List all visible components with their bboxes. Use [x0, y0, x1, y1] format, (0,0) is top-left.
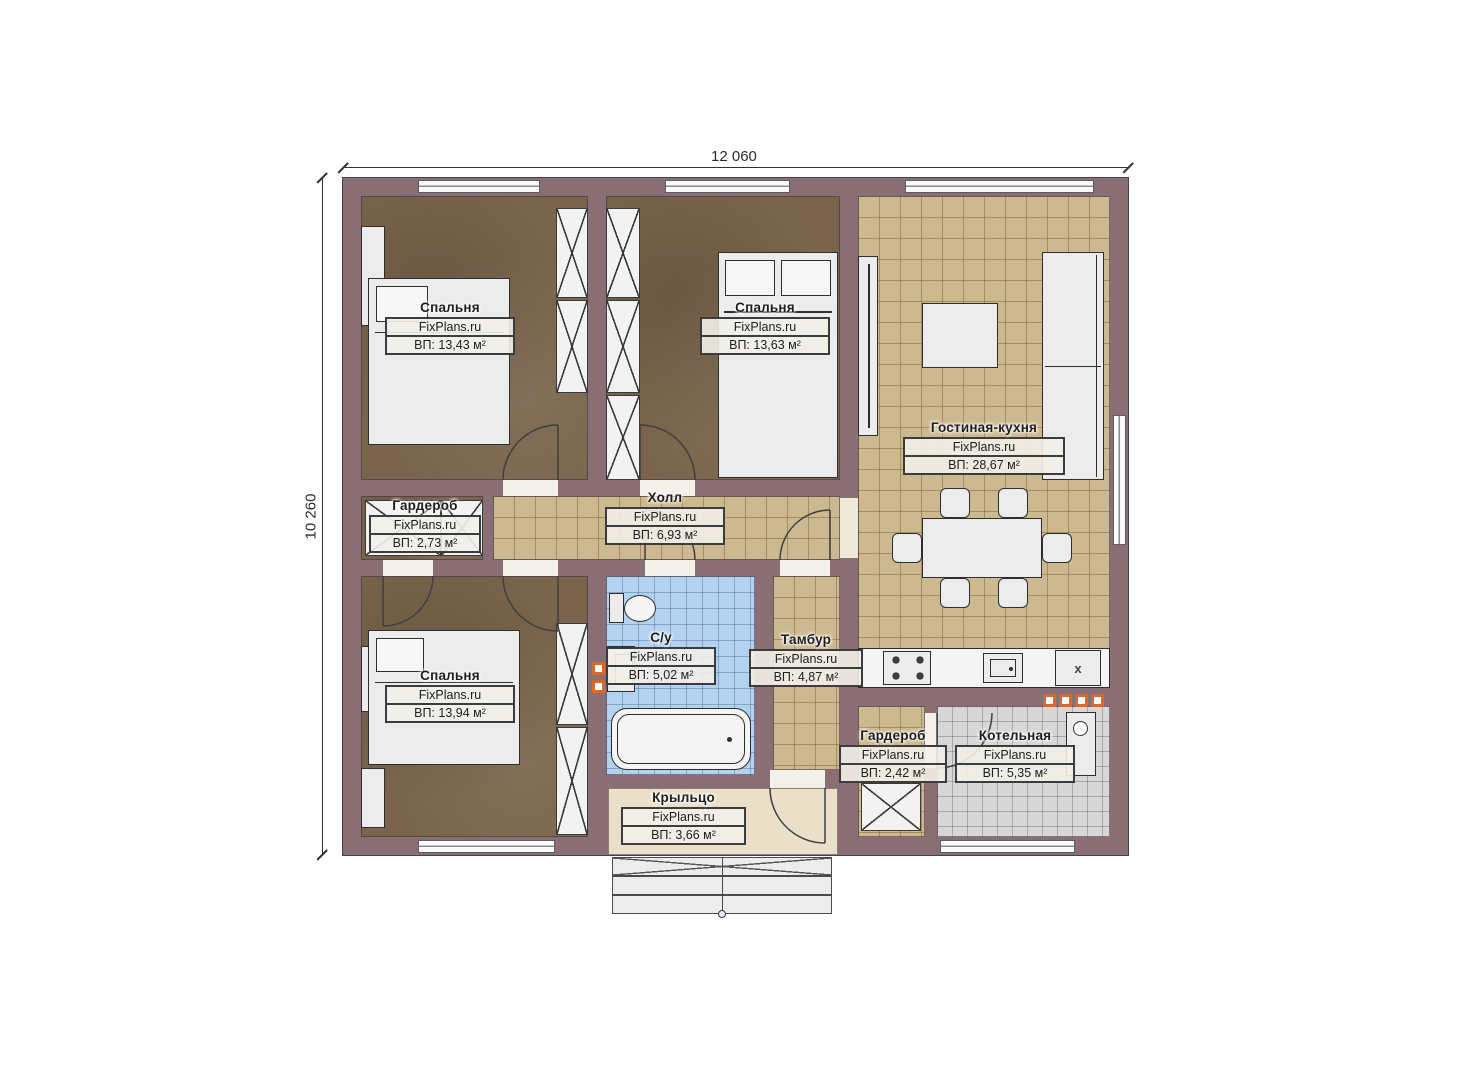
porch-center-line: [722, 857, 723, 914]
chair-symbol: [940, 578, 970, 608]
room-label-tambour: Тамбур FixPlans.ru ВП: 4,87 м²: [749, 632, 863, 687]
boiler-dial: [1073, 721, 1088, 736]
radiator-marker: [1091, 694, 1104, 707]
room-label-wardrobe1: Гардероб FixPlans.ru ВП: 2,73 м²: [369, 498, 481, 553]
brand-watermark: FixPlans.ru: [839, 745, 947, 765]
room-area: ВП: 13,94 м²: [385, 703, 515, 723]
toilet-tank: [609, 593, 624, 623]
room-name: Тамбур: [749, 632, 863, 647]
house-plan: x: [343, 178, 1128, 855]
window-symbol: [665, 180, 790, 193]
bathtub-drain: [727, 737, 732, 742]
closet-symbol: [556, 727, 588, 835]
toilet-bowl: [624, 595, 656, 622]
dining-table-symbol: [922, 518, 1042, 578]
fridge-symbol: x: [1055, 650, 1101, 686]
room-name: Гостиная-кухня: [903, 420, 1065, 435]
window-symbol: [940, 840, 1075, 853]
room-area: ВП: 4,87 м²: [749, 667, 863, 687]
closet-symbol: [606, 208, 640, 298]
tv-symbol: [858, 256, 878, 436]
brand-watermark: FixPlans.ru: [903, 437, 1065, 457]
fridge-mark: x: [1056, 651, 1100, 685]
bed-symbol: [718, 252, 838, 478]
room-name: Холл: [605, 490, 725, 505]
closet-symbol: [606, 300, 640, 393]
sofa-cushion-split: [1045, 366, 1100, 367]
brand-watermark: FixPlans.ru: [385, 317, 515, 337]
room-label-porch: Крыльцо FixPlans.ru ВП: 3,66 м²: [621, 790, 746, 845]
chair-symbol: [940, 488, 970, 518]
radiator-marker: [592, 680, 605, 693]
room-area: ВП: 28,67 м²: [903, 455, 1065, 475]
hall-kitchen-opening: [840, 498, 858, 558]
room-label-bedroom3: Спальня FixPlans.ru ВП: 13,94 м²: [385, 668, 515, 723]
coffee-table-symbol: [922, 303, 998, 368]
pillow-symbol: [725, 260, 775, 296]
sink-drain: [1009, 667, 1013, 671]
entrance-door-opening: [770, 770, 825, 788]
plan-width-dimension: 12 060: [705, 148, 763, 165]
room-area: ВП: 13,43 м²: [385, 335, 515, 355]
window-symbol: [905, 180, 1094, 193]
bathtub-inner: [617, 714, 745, 764]
closet-symbol: [861, 783, 921, 831]
room-label-living-kitchen: Гостиная-кухня FixPlans.ru ВП: 28,67 м²: [903, 420, 1065, 475]
brand-watermark: FixPlans.ru: [605, 507, 725, 527]
room-name: Спальня: [385, 300, 515, 315]
sink-symbol: [983, 653, 1023, 683]
room-label-bathroom: С/у FixPlans.ru ВП: 5,02 м²: [606, 630, 716, 685]
bathtub-symbol: [611, 708, 751, 770]
room-name: Котельная: [955, 728, 1075, 743]
brand-watermark: FixPlans.ru: [955, 745, 1075, 765]
door-opening: [503, 560, 558, 576]
left-dimension-line: [322, 178, 323, 855]
door-opening: [645, 560, 695, 576]
room-area: ВП: 5,02 м²: [606, 665, 716, 685]
closet-symbol: [606, 395, 640, 480]
room-area: ВП: 5,35 м²: [955, 763, 1075, 783]
brand-watermark: FixPlans.ru: [369, 515, 481, 535]
porch-marker-dot: [718, 910, 726, 918]
brand-watermark: FixPlans.ru: [385, 685, 515, 705]
brand-watermark: FixPlans.ru: [621, 807, 746, 827]
room-name: Гардероб: [369, 498, 481, 513]
room-label-hall: Холл FixPlans.ru ВП: 6,93 м²: [605, 490, 725, 545]
closet-symbol: [556, 623, 588, 725]
brand-watermark: FixPlans.ru: [749, 649, 863, 669]
pillow-symbol: [781, 260, 831, 296]
chair-symbol: [998, 488, 1028, 518]
door-opening: [503, 480, 558, 496]
room-label-boiler: Котельная FixPlans.ru ВП: 5,35 м²: [955, 728, 1075, 783]
door-opening: [780, 560, 830, 576]
room-area: ВП: 2,42 м²: [839, 763, 947, 783]
window-symbol: [418, 180, 540, 193]
window-symbol: [1113, 415, 1126, 545]
room-name: Крыльцо: [621, 790, 746, 805]
plan-height-dimension: 10 260: [303, 476, 320, 558]
room-name: Спальня: [700, 300, 830, 315]
stove-symbol: [883, 651, 931, 685]
radiator-marker: [1043, 694, 1056, 707]
room-area: ВП: 2,73 м²: [369, 533, 481, 553]
room-label-bedroom2: Спальня FixPlans.ru ВП: 13,63 м²: [700, 300, 830, 355]
sofa-backrest-line: [1096, 255, 1097, 477]
room-label-bedroom1: Спальня FixPlans.ru ВП: 13,43 м²: [385, 300, 515, 355]
room-area: ВП: 3,66 м²: [621, 825, 746, 845]
radiator-marker: [592, 662, 605, 675]
window-symbol: [418, 840, 555, 853]
floor-plan-canvas: 12 060 10 260: [0, 0, 1473, 1080]
chair-symbol: [1042, 533, 1072, 563]
door-opening: [383, 560, 433, 576]
chair-symbol: [892, 533, 922, 563]
room-name: Гардероб: [839, 728, 947, 743]
closet-symbol: [556, 300, 588, 393]
pillow-symbol: [376, 638, 424, 672]
closet-symbol: [556, 208, 588, 298]
room-label-wardrobe2: Гардероб FixPlans.ru ВП: 2,42 м²: [839, 728, 947, 783]
brand-watermark: FixPlans.ru: [606, 647, 716, 667]
radiator-marker: [1059, 694, 1072, 707]
tv-screen-line: [868, 264, 870, 428]
radiator-marker: [1075, 694, 1088, 707]
room-name: С/у: [606, 630, 716, 645]
room-area: ВП: 6,93 м²: [605, 525, 725, 545]
porch-steps: [612, 857, 832, 914]
chair-symbol: [998, 578, 1028, 608]
top-dimension-line: [343, 167, 1128, 168]
room-area: ВП: 13,63 м²: [700, 335, 830, 355]
room-name: Спальня: [385, 668, 515, 683]
wall-niche: [361, 768, 385, 828]
brand-watermark: FixPlans.ru: [700, 317, 830, 337]
